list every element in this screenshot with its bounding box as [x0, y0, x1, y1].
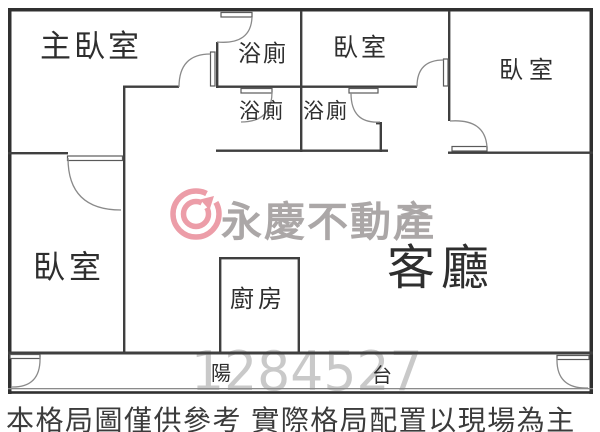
wall-segment [8, 8, 12, 394]
door-leaf [241, 89, 272, 94]
room-label-bathroom-top: 浴廁 [238, 42, 288, 65]
room-label-balcony-left-char: 陽 [211, 364, 231, 384]
door-swing-arc [417, 60, 444, 87]
door-leaf [221, 13, 252, 18]
floorplan-image: 永慶不動產 1284527 [0, 0, 600, 432]
wall-segment [8, 152, 68, 154]
wall-segment [590, 8, 594, 394]
door-leaf [10, 355, 40, 359]
door-swing-arc [450, 121, 487, 147]
wall-segment [8, 391, 593, 394]
room-label-bedroom-lower-left: 臥室 [33, 251, 105, 283]
door-leaf [349, 89, 378, 94]
wall-segment [8, 388, 593, 389]
wall-segment [219, 257, 300, 259]
wall-segment [8, 352, 593, 355]
wall-segment [219, 257, 221, 354]
door-leaf [452, 147, 487, 152]
wall-segment [448, 152, 593, 154]
door-leaf [68, 156, 123, 161]
room-label-living-room: 客廳 [387, 245, 495, 293]
door-leaf [444, 59, 449, 86]
door-swing-arc [179, 54, 211, 87]
wall-segment [123, 86, 179, 88]
room-label-bathroom-mid-right: 浴廁 [303, 101, 349, 122]
door-leaf [211, 52, 216, 86]
room-label-bathroom-mid-left: 浴廁 [239, 101, 285, 122]
room-label-master-bedroom: 主臥室 [40, 31, 142, 62]
room-label-bedroom-right: 臥室 [499, 59, 559, 83]
disclaimer-text: 本格局圖僅供參考 實際格局配置以現場為主 [6, 399, 576, 432]
wall-segment [123, 86, 125, 355]
wall-segment [298, 257, 300, 354]
wall-segment [216, 150, 388, 152]
wall-segment [300, 11, 302, 152]
wall-segment [8, 8, 593, 12]
wall-segment [216, 42, 218, 88]
door-swing-arc [11, 357, 40, 387]
door-swing-arc [68, 158, 121, 210]
wall-segment [216, 86, 417, 88]
room-label-kitchen: 廚房 [230, 288, 286, 312]
door-swing-arc [217, 17, 252, 42]
door-swing-arc [351, 93, 380, 122]
door-swing-arc [557, 358, 588, 388]
room-label-bedroom-middle: 臥室 [333, 36, 389, 61]
room-label-balcony-right-char: 台 [372, 366, 392, 386]
wall-segment [380, 122, 382, 152]
door-leaf [557, 356, 589, 360]
